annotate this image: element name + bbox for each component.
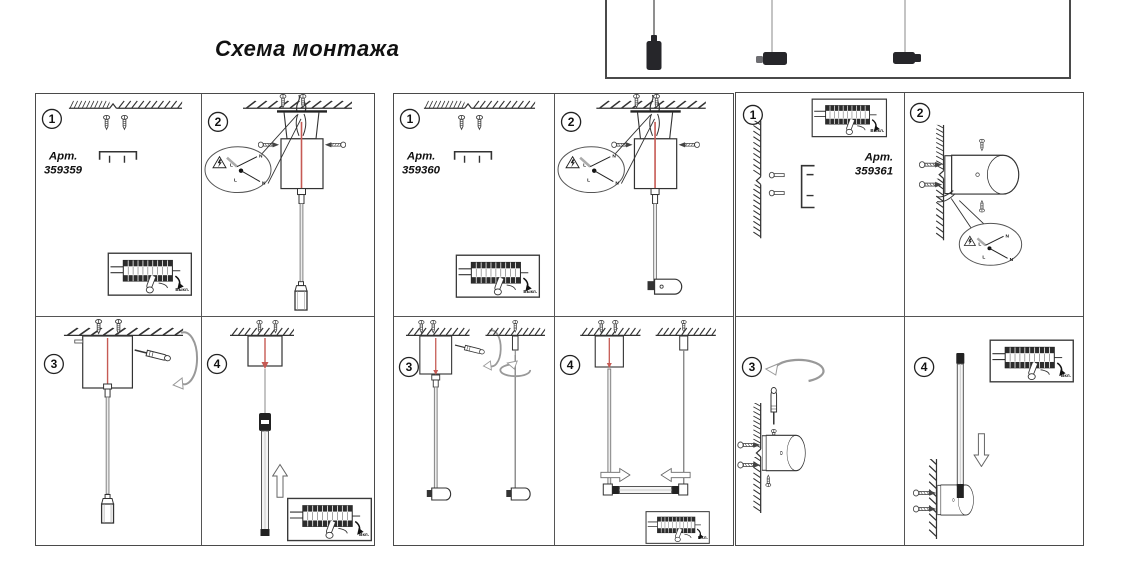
ceiling-hatch xyxy=(69,101,183,108)
horizontal-tube-lamp xyxy=(603,484,687,495)
step-number-badge: 1 xyxy=(400,109,419,128)
lamp-socket xyxy=(102,495,114,524)
ceiling-hatch xyxy=(424,101,536,108)
terminal-block-inset: Выкл. xyxy=(456,255,539,297)
step-number-badge: 4 xyxy=(208,355,227,374)
power-off-label: Выкл. xyxy=(175,287,189,292)
cylinder-fixture xyxy=(945,155,1019,194)
wall-hatch xyxy=(936,124,944,240)
power-off-label: Выкл. xyxy=(870,128,884,133)
art-number: 359359 xyxy=(44,165,83,177)
step-number-badge: 2 xyxy=(209,112,228,131)
wiring-detail-balloon: N L L N xyxy=(951,199,1021,266)
panel-359361: 1 Выкл. Арт. 359361 xyxy=(735,92,1084,546)
diagram-step-1: 1 Арт. 359360 Выкл. xyxy=(394,94,554,316)
vertical-cylinder-pendant xyxy=(647,0,662,70)
svg-text:4: 4 xyxy=(567,358,574,372)
screw-icon xyxy=(979,139,984,150)
mounting-screw-arrow xyxy=(913,506,936,512)
wire-label-l: L xyxy=(587,178,590,184)
wire-label-l: L xyxy=(583,163,586,169)
step-number-badge: 3 xyxy=(44,355,63,374)
diagram-step-2: 2 xyxy=(555,94,733,316)
canopy xyxy=(75,336,133,388)
down-arrow xyxy=(974,434,989,467)
ceiling-hatch xyxy=(243,101,354,108)
svg-text:2: 2 xyxy=(215,115,222,129)
wire-label-n: N xyxy=(259,154,263,160)
canopy xyxy=(595,336,623,368)
step-number-badge: 3 xyxy=(742,358,761,377)
horizontal-cylinder-pendant-connector xyxy=(893,0,921,64)
art-number: 359361 xyxy=(855,166,893,178)
wire-label-l: L xyxy=(982,254,985,260)
suspension-cord xyxy=(300,204,303,283)
wire-label-n: N xyxy=(615,181,619,187)
horizontal-fixture xyxy=(506,488,530,500)
product-preview-box xyxy=(605,0,1071,79)
up-arrow xyxy=(273,465,288,498)
wire-label-l: L xyxy=(978,241,981,247)
panel-359360-step-4-cell: 4 xyxy=(555,317,733,545)
wire-label-l: L xyxy=(230,163,233,169)
panel-359360-step-1-cell: 1 Арт. 359360 Выкл. xyxy=(394,94,555,317)
svg-text:4: 4 xyxy=(921,360,928,374)
panel-359361-step-1-cell: 1 Выкл. Арт. 359361 xyxy=(736,93,905,317)
mounting-screw-arrow xyxy=(738,442,761,448)
horizontal-fixture xyxy=(427,488,451,500)
svg-text:3: 3 xyxy=(51,357,58,371)
suspension-cord xyxy=(434,387,437,490)
power-on-label: Вкл. xyxy=(359,532,369,537)
screw-icon xyxy=(458,115,482,129)
panel-359359-step-4-cell: 4 Вкл. xyxy=(202,317,374,545)
mounting-screw-arrow xyxy=(919,182,942,188)
horizontal-fixture xyxy=(648,279,682,294)
svg-text:3: 3 xyxy=(749,360,756,374)
cord-grip xyxy=(104,384,112,397)
mounting-screw-arrow xyxy=(913,490,936,496)
suspension-cord xyxy=(106,397,109,494)
wire-label-n: N xyxy=(1010,257,1014,263)
step-number-badge: 3 xyxy=(399,358,418,377)
screw-icon xyxy=(103,115,127,129)
svg-text:1: 1 xyxy=(750,108,757,122)
cord-grip xyxy=(432,375,440,387)
rotation-arrow xyxy=(483,330,500,370)
screw-icon xyxy=(280,94,286,107)
wire-label-n: N xyxy=(262,181,266,187)
diagram-step-3: 3 xyxy=(394,317,554,545)
canopy xyxy=(420,336,452,375)
screw-icon xyxy=(513,320,518,331)
power-on-label: Вкл. xyxy=(698,535,708,540)
art-number: 359360 xyxy=(402,165,441,177)
panel-359360-step-3-cell: 3 xyxy=(394,317,555,545)
right-arrow xyxy=(601,469,630,482)
mounting-bracket xyxy=(455,152,492,163)
diagram-step-4: 4 xyxy=(555,317,733,545)
ceiling-hatch xyxy=(64,328,185,335)
suspension-cord xyxy=(608,369,611,485)
rotation-arrow xyxy=(766,360,824,381)
pendant-lamps-illustration xyxy=(607,0,1065,73)
svg-text:1: 1 xyxy=(49,112,56,126)
diagram-step-2: 2 xyxy=(202,94,374,316)
art-label: Арт. xyxy=(406,151,435,163)
wall-hatch xyxy=(753,120,760,238)
cord-adjuster xyxy=(680,336,688,350)
screw-icon xyxy=(769,172,784,195)
diagram-step-1: 1 Арт. 359359 Выкл. xyxy=(36,94,201,316)
diagram-step-2: 2 N L xyxy=(905,93,1083,316)
svg-text:2: 2 xyxy=(568,115,575,129)
side-screw-icon xyxy=(325,142,346,147)
page-title: Схема монтажа xyxy=(215,36,399,62)
rotation-arrow xyxy=(173,332,197,389)
lamp-socket xyxy=(295,282,307,310)
suspension-cord xyxy=(654,204,657,282)
mounting-bracket xyxy=(802,166,815,208)
screw-icon xyxy=(613,320,618,332)
panel-359360: 1 Арт. 359360 Выкл. xyxy=(393,93,734,546)
power-on-label: Вкл. xyxy=(1061,373,1071,378)
panel-359359-step-1-cell: 1 Арт. 359359 Выкл. xyxy=(36,94,202,317)
terminal-block-inset: Выкл. xyxy=(108,253,191,295)
step-number-badge: 4 xyxy=(561,356,580,375)
step-number-badge: 2 xyxy=(911,103,930,122)
diagram-step-3: 3 xyxy=(736,317,904,545)
wire-label-n: N xyxy=(612,154,616,160)
screw-icon xyxy=(979,201,984,212)
screwdriver-icon xyxy=(771,388,777,425)
canopy xyxy=(248,336,282,369)
wire-label-l: L xyxy=(234,178,237,184)
panel-359360-step-2-cell: 2 xyxy=(555,94,733,317)
screw-icon xyxy=(431,320,436,332)
screw-icon xyxy=(766,475,771,486)
mounting-screw-arrow xyxy=(738,462,761,468)
cylinder-fixture xyxy=(762,435,805,470)
art-label: Арт. xyxy=(48,151,77,163)
wire-label-n: N xyxy=(1006,233,1010,239)
ceiling-hatch xyxy=(406,328,471,335)
ceiling-hatch xyxy=(596,101,707,108)
diagram-step-4: 4 Вкл. xyxy=(202,317,374,545)
svg-text:3: 3 xyxy=(406,360,413,374)
panel-359359-step-2-cell: 2 xyxy=(202,94,374,317)
svg-text:1: 1 xyxy=(407,112,414,126)
ceiling-hatch xyxy=(580,328,641,335)
panel-359361-step-4-cell: 4 Вкл. xyxy=(905,317,1083,545)
mounting-bracket xyxy=(100,152,137,163)
diagram-step-3: 3 xyxy=(36,317,201,545)
ceiling-hatch xyxy=(656,328,717,335)
step-number-badge: 4 xyxy=(915,358,934,377)
terminal-block-inset: Вкл. xyxy=(990,340,1073,382)
svg-text:4: 4 xyxy=(214,357,221,371)
ceiling-hatch xyxy=(230,328,295,335)
cylinder-fixture xyxy=(937,485,973,515)
diagram-step-1: 1 Выкл. Арт. 359361 xyxy=(736,93,904,316)
panel-359361-step-3-cell: 3 xyxy=(736,317,905,545)
panel-359361-step-2-cell: 2 N L xyxy=(905,93,1083,317)
horizontal-cylinder-pendant xyxy=(756,0,787,65)
screwdriver-icon xyxy=(454,343,484,355)
screwdriver-icon xyxy=(134,347,171,361)
tube-lamp xyxy=(259,413,271,536)
terminal-block-inset: Вкл. xyxy=(288,498,372,540)
cord-adjuster xyxy=(512,336,518,355)
art-label: Арт. xyxy=(864,152,893,164)
cord-grip xyxy=(651,189,659,204)
cord-grip xyxy=(298,189,306,204)
wall-hatch xyxy=(929,458,936,539)
terminal-block-inset: Вкл. xyxy=(646,512,709,544)
step-number-badge: 1 xyxy=(42,109,61,128)
tube-lamp xyxy=(956,353,964,498)
side-screw-icon xyxy=(679,142,700,147)
terminal-block-inset: Выкл. xyxy=(812,99,886,136)
left-arrow xyxy=(661,469,690,482)
panel-359359: 1 Арт. 359359 Выкл. xyxy=(35,93,375,546)
screw-icon xyxy=(634,94,640,107)
diagram-step-4: 4 Вкл. xyxy=(905,317,1083,545)
power-off-label: Выкл. xyxy=(523,289,537,294)
panel-359359-step-3-cell: 3 xyxy=(36,317,202,545)
step-number-badge: 2 xyxy=(562,112,581,131)
wall-hatch xyxy=(753,402,760,513)
svg-text:2: 2 xyxy=(917,106,924,120)
step-number-badge: 1 xyxy=(743,105,762,124)
